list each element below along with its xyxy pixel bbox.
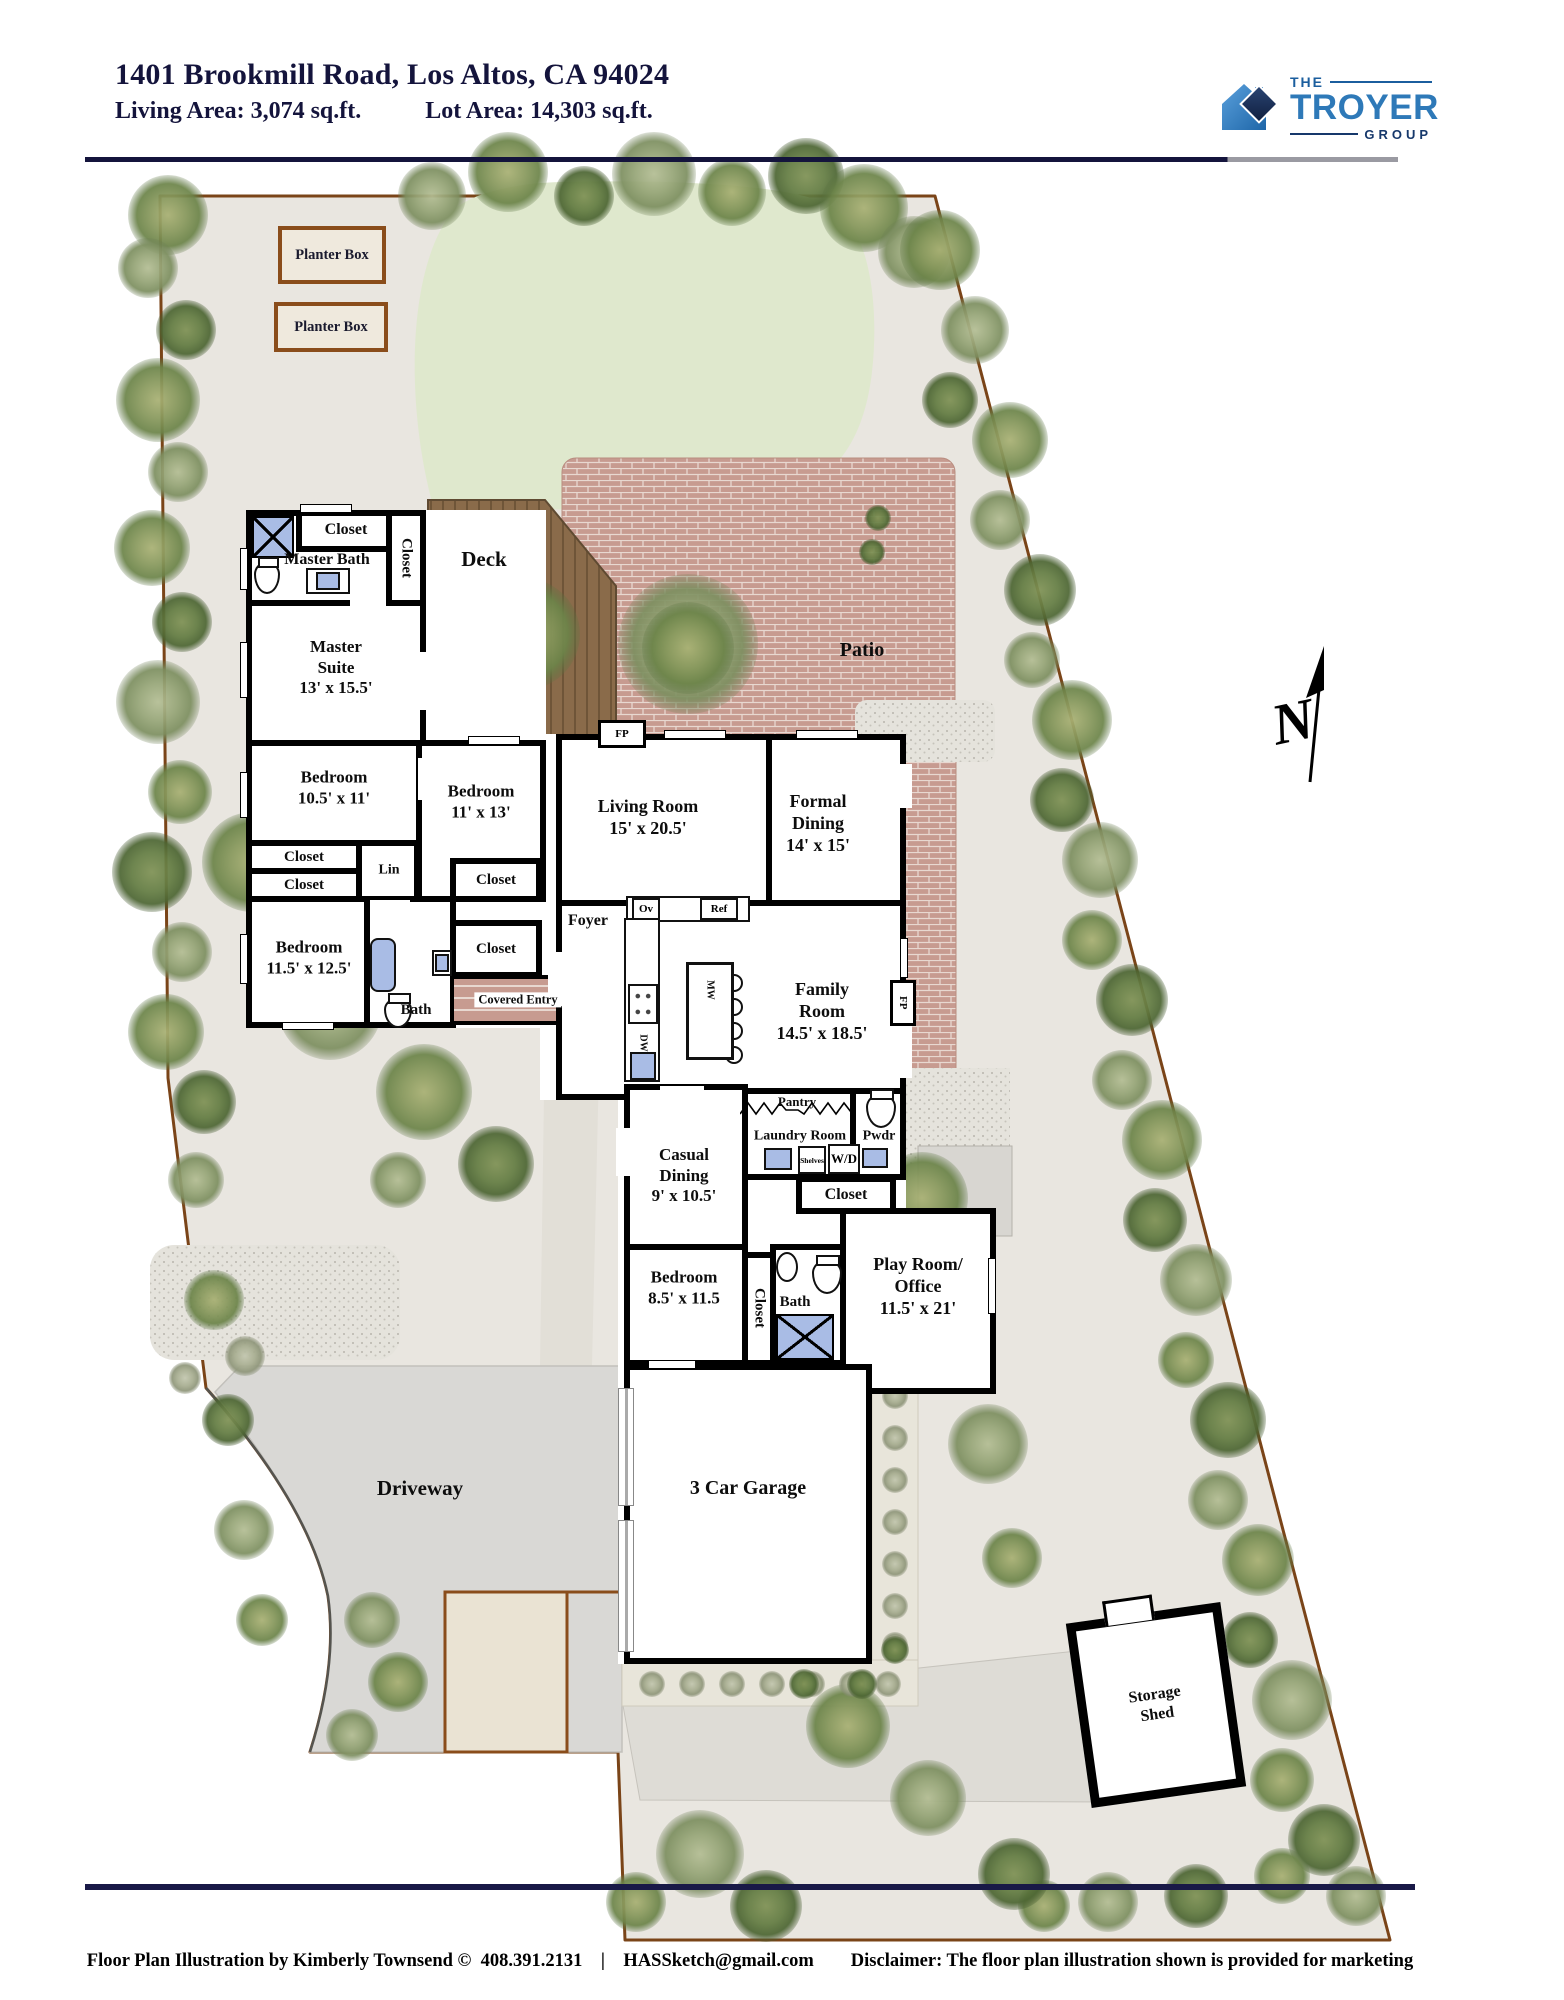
window bbox=[900, 938, 908, 978]
washer-dryer-icon: W/D bbox=[828, 1144, 860, 1174]
label-bedroom-3: Bedroom11.5' x 12.5' bbox=[266, 937, 351, 978]
window bbox=[240, 772, 248, 818]
shelves: Shelves bbox=[798, 1146, 826, 1174]
lot-area-value: Lot Area: 14,303 sq.ft. bbox=[425, 98, 653, 124]
shed-door bbox=[1102, 1595, 1155, 1627]
label-closet: Closet bbox=[476, 940, 516, 958]
oven-icon: Ov bbox=[632, 898, 660, 920]
planter-box-1: Planter Box bbox=[278, 226, 386, 284]
vanity-icon bbox=[306, 568, 350, 594]
label-covered-entry: Covered Entry bbox=[474, 992, 561, 1007]
kitchen-sink-icon bbox=[630, 1052, 656, 1080]
area-summary: Living Area: 3,074 sq.ft. Lot Area: 14,3… bbox=[115, 98, 669, 125]
planter-box-2: Planter Box bbox=[274, 302, 388, 352]
logo-group: GROUP bbox=[1364, 127, 1432, 142]
label-closet: Closet bbox=[751, 1288, 768, 1328]
troyer-group-logo: THE TROYER GROUP bbox=[1218, 74, 1432, 142]
microwave-icon: MW bbox=[705, 980, 716, 999]
kitchen-island bbox=[686, 962, 734, 1060]
label-bath-2: Bath bbox=[780, 1293, 811, 1311]
laundry-sink-icon bbox=[764, 1148, 792, 1170]
label-bath: Bath bbox=[401, 1001, 432, 1019]
footer-line-1: Floor Plan Illustration by Kimberly Town… bbox=[85, 1949, 1415, 1975]
sink-icon bbox=[862, 1148, 888, 1168]
footer-text: Floor Plan Illustration by Kimberly Town… bbox=[85, 1897, 1415, 2000]
window bbox=[468, 736, 520, 745]
storage-shed: Storage Shed bbox=[1066, 1602, 1246, 1808]
label-family-room: Family Room14.5' x 18.5' bbox=[778, 979, 866, 1045]
room-garage bbox=[624, 1364, 872, 1664]
window bbox=[240, 934, 248, 984]
page-title: 1401 Brookmill Road, Los Altos, CA 94024 bbox=[115, 58, 669, 92]
label-living-room: Living Room15' x 20.5' bbox=[598, 796, 699, 840]
window bbox=[300, 504, 352, 513]
label-master-suite: Master Suite13' x 15.5' bbox=[294, 637, 378, 699]
label-closet: Closet bbox=[325, 520, 368, 540]
header-divider bbox=[85, 157, 1398, 162]
label-bedroom-1: Bedroom10.5' x 11' bbox=[298, 767, 370, 808]
window bbox=[282, 1022, 334, 1030]
label-closet: Closet bbox=[476, 871, 516, 889]
label-closet: Closet bbox=[398, 538, 415, 578]
label-play-room: Play Room/Office11.5' x 21' bbox=[873, 1254, 963, 1320]
header: 1401 Brookmill Road, Los Altos, CA 94024… bbox=[115, 58, 669, 125]
label-deck: Deck bbox=[461, 547, 507, 573]
stove-icon bbox=[628, 984, 658, 1024]
window bbox=[988, 1258, 996, 1314]
garage-door bbox=[618, 1388, 634, 1506]
window bbox=[664, 730, 726, 739]
logo-troyer: TROYER bbox=[1290, 90, 1432, 127]
fireplace-icon: FP bbox=[890, 980, 916, 1026]
label-master-bath: Master Bath bbox=[284, 550, 369, 570]
footer-divider bbox=[85, 1884, 1415, 1890]
fireplace-icon: FP bbox=[598, 720, 646, 748]
bathtub-icon bbox=[370, 938, 396, 992]
label-formal-dining: Formal Dining14' x 15' bbox=[778, 791, 858, 857]
label-linen: Lin bbox=[378, 861, 399, 878]
window bbox=[240, 548, 248, 590]
pedestal-sink-icon bbox=[776, 1252, 798, 1282]
label-casual-dining: Casual Dining9' x 10.5' bbox=[636, 1145, 732, 1207]
garage-door bbox=[618, 1520, 634, 1652]
window bbox=[796, 730, 858, 739]
shower-icon bbox=[776, 1314, 834, 1360]
label-laundry: Laundry Room bbox=[754, 1127, 846, 1144]
label-closet: Closet bbox=[284, 848, 324, 866]
dishwasher-icon: DW bbox=[638, 1034, 649, 1051]
window bbox=[648, 1360, 696, 1369]
north-arrow: N bbox=[1262, 636, 1372, 786]
refrigerator-icon: Ref bbox=[700, 898, 738, 920]
floor-plan-page: 1401 Brookmill Road, Los Altos, CA 94024… bbox=[0, 0, 1564, 2000]
label-driveway: Driveway bbox=[377, 1476, 463, 1502]
window bbox=[240, 642, 248, 698]
living-area-value: Living Area: 3,074 sq.ft. bbox=[115, 98, 361, 124]
label-closet: Closet bbox=[825, 1185, 868, 1205]
label-pantry: Pantry bbox=[778, 1094, 816, 1110]
label-pwdr: Pwdr bbox=[863, 1127, 896, 1144]
sink-icon bbox=[432, 950, 452, 976]
label-foyer: Foyer bbox=[568, 911, 608, 931]
label-closet: Closet bbox=[284, 876, 324, 894]
label-bedroom-2: Bedroom11' x 13' bbox=[448, 781, 515, 822]
logo-house-icon bbox=[1218, 74, 1280, 134]
label-patio: Patio bbox=[840, 638, 884, 662]
label-bedroom-4: Bedroom8.5' x 11.5 bbox=[648, 1267, 720, 1308]
label-garage: 3 Car Garage bbox=[690, 1476, 806, 1500]
